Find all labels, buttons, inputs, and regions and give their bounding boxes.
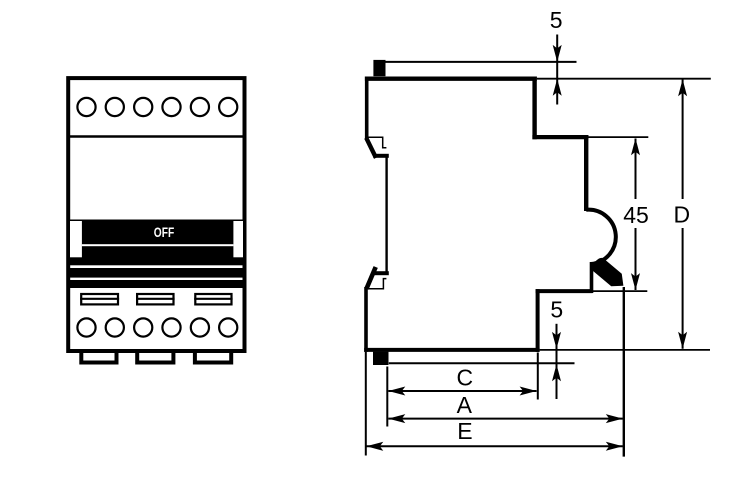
svg-text:5: 5 bbox=[550, 296, 563, 322]
svg-text:45: 45 bbox=[623, 202, 649, 228]
svg-text:A: A bbox=[457, 392, 473, 418]
svg-text:OFF: OFF bbox=[154, 224, 175, 240]
svg-text:E: E bbox=[457, 418, 472, 444]
svg-text:D: D bbox=[673, 202, 690, 228]
svg-text:5: 5 bbox=[550, 7, 563, 33]
svg-text:C: C bbox=[456, 365, 473, 391]
